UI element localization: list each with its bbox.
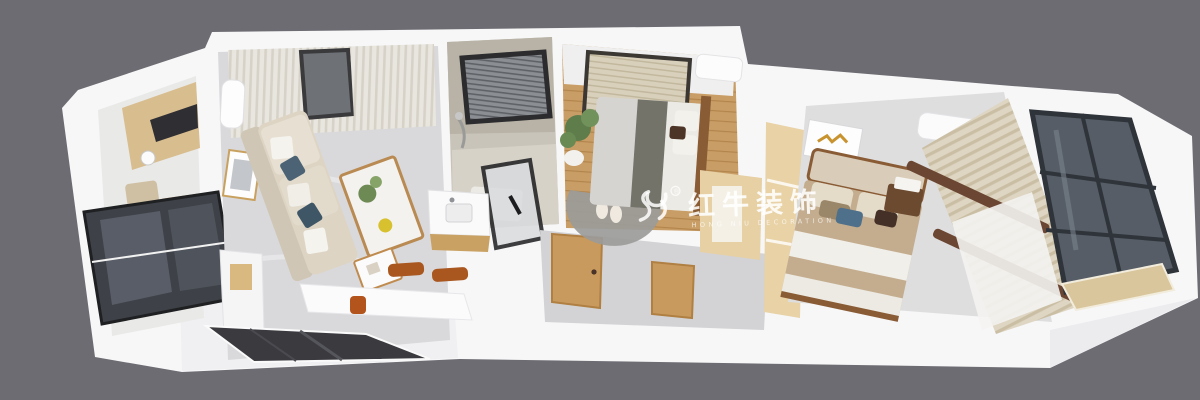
sideboard: [220, 250, 264, 336]
dining-chair: [388, 262, 425, 277]
wall-art-print: [230, 159, 254, 191]
registered-mark: ®: [673, 187, 680, 195]
shower-head: [455, 112, 463, 120]
accent-pillow: [669, 126, 686, 140]
door-knob: [592, 270, 597, 275]
throw-pillow-white: [287, 182, 312, 207]
bathroom-window: [462, 52, 550, 122]
dining-chair: [432, 267, 469, 282]
faucet: [450, 198, 455, 203]
sink: [141, 151, 155, 165]
sink-basin: [446, 204, 472, 222]
slipper: [610, 205, 622, 223]
plant-pot: [564, 150, 584, 166]
vanity-sink: [428, 190, 490, 252]
bedroom2-ac-unit: [695, 54, 743, 83]
floorplan-render: ® 红牛装饰 HONG NIU DECORATION: [0, 0, 1200, 400]
hall-door: [652, 262, 694, 318]
glass-pane: [100, 211, 172, 305]
curtains: [350, 45, 436, 124]
throw-pillow-white: [303, 227, 329, 254]
sideboard-cubby: [230, 264, 252, 290]
throw-pillow-white: [270, 136, 294, 160]
vanity-wood-base: [430, 234, 490, 252]
wall-ac-unit: [220, 79, 245, 128]
dining-chair: [350, 296, 366, 314]
scene-canvas: ® 红牛装饰 HONG NIU DECORATION: [0, 0, 1200, 400]
window: [301, 50, 353, 118]
